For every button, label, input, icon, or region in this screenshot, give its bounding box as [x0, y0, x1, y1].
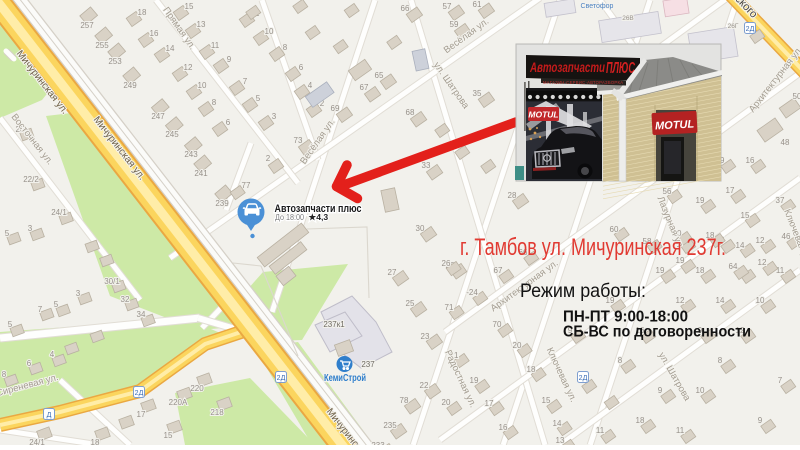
svg-text:249: 249 [123, 81, 137, 90]
svg-text:2Д: 2Д [135, 390, 144, 397]
svg-text:-24: -24 [466, 288, 478, 297]
svg-text:СБ-ВС по договоренности: СБ-ВС по договоренности [563, 324, 751, 341]
svg-text:26В: 26В [622, 15, 634, 22]
svg-text:32: 32 [121, 295, 130, 304]
svg-text:5: 5 [8, 320, 13, 329]
svg-text:19: 19 [470, 376, 479, 385]
svg-text:8: 8 [718, 356, 723, 365]
svg-text:235: 235 [383, 421, 397, 430]
svg-text:46: 46 [782, 232, 791, 241]
svg-text:218: 218 [210, 408, 224, 417]
svg-text:19: 19 [696, 196, 705, 205]
svg-text:До 18:00: До 18:00 [275, 212, 304, 222]
svg-text:78: 78 [400, 396, 409, 405]
svg-text:6: 6 [27, 359, 32, 368]
svg-text:14: 14 [716, 296, 725, 305]
svg-text:64: 64 [729, 262, 738, 271]
svg-text:253: 253 [108, 57, 122, 66]
svg-text:220А: 220А [169, 398, 188, 407]
svg-text:12: 12 [676, 296, 685, 305]
svg-text:59: 59 [450, 20, 459, 29]
svg-text:13: 13 [197, 20, 206, 29]
svg-text:17: 17 [137, 410, 146, 419]
svg-text:10: 10 [198, 81, 207, 90]
svg-text:ПЛЮС: ПЛЮС [606, 60, 635, 77]
svg-text:20: 20 [513, 341, 522, 350]
svg-text:22: 22 [420, 381, 429, 390]
svg-text:233: 233 [371, 441, 385, 445]
svg-text:30: 30 [416, 224, 425, 233]
svg-text:14: 14 [736, 241, 745, 250]
svg-text:15: 15 [185, 2, 194, 11]
svg-text:Режим работы:: Режим работы: [520, 280, 646, 302]
svg-text:★4,3: ★4,3 [309, 212, 329, 222]
svg-text:12: 12 [756, 236, 765, 245]
svg-text:11: 11 [676, 426, 685, 435]
svg-text:г. Тамбов ул. Мичуринская 237г: г. Тамбов ул. Мичуринская 237г. [460, 234, 726, 261]
svg-text:67: 67 [360, 83, 369, 92]
svg-text:13: 13 [556, 436, 565, 445]
svg-text:5: 5 [5, 229, 10, 238]
svg-text:16: 16 [150, 29, 159, 38]
svg-text:243: 243 [184, 150, 198, 159]
svg-text:6: 6 [299, 63, 304, 72]
svg-text:Д: Д [47, 412, 52, 419]
svg-text:61: 61 [473, 0, 482, 9]
svg-text:34: 34 [137, 310, 146, 319]
svg-text:37: 37 [776, 196, 785, 205]
svg-text:3: 3 [76, 289, 81, 298]
svg-text:30/1: 30/1 [104, 277, 120, 286]
svg-text:11: 11 [596, 426, 605, 435]
svg-text:50: 50 [793, 92, 800, 101]
svg-text:247: 247 [151, 112, 165, 121]
svg-text:25: 25 [406, 299, 415, 308]
svg-text:15: 15 [164, 431, 173, 440]
svg-text:17: 17 [726, 186, 735, 195]
svg-text:3: 3 [28, 224, 33, 233]
svg-text:70: 70 [493, 320, 502, 329]
svg-text:14: 14 [166, 44, 175, 53]
svg-text:15: 15 [741, 211, 750, 220]
svg-text:68: 68 [406, 108, 415, 117]
svg-text:14: 14 [553, 419, 562, 428]
svg-text:2Д: 2Д [277, 375, 286, 382]
svg-text:245: 245 [165, 130, 179, 139]
svg-text:4: 4 [308, 81, 313, 90]
svg-text:5: 5 [256, 94, 261, 103]
svg-text:10: 10 [265, 27, 274, 36]
svg-text:77: 77 [242, 181, 251, 190]
svg-text:12: 12 [758, 258, 767, 267]
svg-text:27: 27 [388, 268, 397, 277]
svg-text:220: 220 [190, 384, 204, 393]
svg-text:2: 2 [266, 154, 271, 163]
svg-text:Светофор: Светофор [581, 3, 614, 10]
svg-text:2Д: 2Д [746, 26, 755, 33]
svg-text:10: 10 [696, 386, 705, 395]
svg-text:18: 18 [138, 8, 147, 17]
svg-text:18: 18 [636, 416, 645, 425]
svg-text:MOTUL: MOTUL [655, 118, 695, 132]
svg-text:257: 257 [80, 21, 94, 30]
svg-text:33: 33 [422, 161, 431, 170]
svg-text:16: 16 [499, 423, 508, 432]
svg-text:20: 20 [442, 398, 451, 407]
svg-text:8: 8 [212, 98, 217, 107]
svg-text:9: 9 [658, 386, 663, 395]
svg-text:65: 65 [375, 71, 384, 80]
svg-text:19: 19 [656, 266, 665, 275]
svg-text:241: 241 [194, 169, 208, 178]
svg-text:3: 3 [272, 112, 277, 121]
svg-text:2Д: 2Д [579, 375, 588, 382]
svg-text:48: 48 [781, 138, 790, 147]
svg-text:15: 15 [542, 396, 551, 405]
svg-text:МАГАЗИН·СЕРВИС·АВТОРАЗБОРКА: МАГАЗИН·СЕРВИС·АВТОРАЗБОРКА [543, 80, 623, 85]
svg-text:24/1: 24/1 [51, 208, 67, 217]
svg-text:66: 66 [401, 4, 410, 13]
svg-text:6: 6 [226, 118, 231, 127]
svg-text:5: 5 [54, 300, 59, 309]
svg-text:4: 4 [50, 350, 55, 359]
svg-text:7: 7 [243, 77, 248, 86]
svg-text:24/1: 24/1 [29, 438, 45, 445]
svg-text:22/2: 22/2 [23, 175, 39, 184]
svg-text:Автозапчасти: Автозапчасти [529, 60, 605, 75]
svg-text:26Г: 26Г [728, 23, 739, 30]
svg-text:9: 9 [227, 55, 232, 64]
svg-text:17: 17 [485, 399, 494, 408]
svg-text:69: 69 [331, 104, 340, 113]
svg-text:8: 8 [2, 370, 7, 379]
svg-text:23: 23 [421, 332, 430, 341]
svg-text:8: 8 [618, 356, 623, 365]
svg-text:16: 16 [746, 156, 755, 165]
svg-text:18: 18 [91, 438, 100, 445]
svg-text:MOTUL: MOTUL [528, 110, 558, 120]
svg-text:35: 35 [473, 89, 482, 98]
svg-text:73: 73 [294, 136, 303, 145]
svg-text:239: 239 [215, 199, 229, 208]
svg-text:12: 12 [184, 63, 193, 72]
svg-text:18: 18 [696, 266, 705, 275]
svg-text:237: 237 [361, 360, 375, 369]
svg-text:26: 26 [442, 259, 451, 268]
svg-text:9: 9 [758, 416, 763, 425]
svg-text:7: 7 [38, 305, 43, 314]
svg-text:67: 67 [494, 266, 503, 275]
svg-text:28: 28 [508, 191, 517, 200]
svg-text:18: 18 [527, 365, 536, 374]
svg-text:71: 71 [445, 303, 454, 312]
svg-text:60: 60 [610, 225, 619, 234]
svg-text:57: 57 [443, 2, 452, 11]
svg-text:237к1: 237к1 [323, 320, 345, 329]
svg-text:255: 255 [95, 41, 109, 50]
svg-text:10: 10 [756, 296, 765, 305]
svg-text:7: 7 [778, 376, 783, 385]
svg-text:11: 11 [211, 41, 220, 50]
svg-text:КемиСтрой: КемиСтрой [324, 372, 366, 384]
svg-text:8: 8 [283, 43, 288, 52]
